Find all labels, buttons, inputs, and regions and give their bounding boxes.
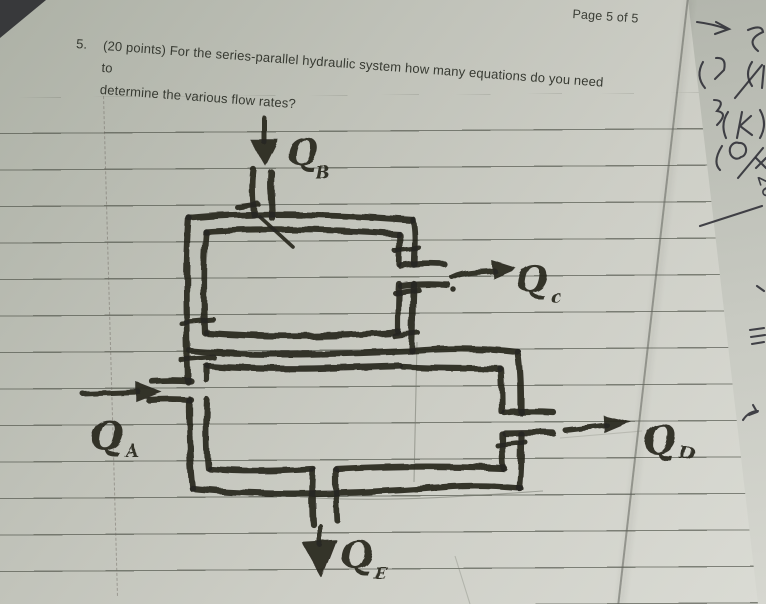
scribble-arrow [697,22,729,34]
flow-arrow-qc-right [452,261,514,292]
flow-arrows [83,118,629,577]
scribble-k-paren [723,110,764,138]
scribble-slash-2 [738,148,763,178]
flow-label-qd: Q D [643,417,695,464]
pipe-bottom-outlet [312,470,337,524]
pipe-couplings [181,204,525,445]
scribble-slash-3 [700,206,762,226]
svg-text:D: D [679,444,695,464]
flow-arrow-qb-down [251,118,277,164]
scribble-check [743,405,758,420]
svg-text:c: c [550,286,561,307]
scribble-5-8 [716,143,766,170]
svg-text:Q: Q [90,413,123,458]
scribble-3 [714,100,723,125]
svg-text:B: B [315,164,330,184]
flow-label-qb: Q B [287,132,330,184]
svg-text:Q: Q [287,132,318,174]
pipe-top-inlet [253,170,272,218]
svg-text:Q: Q [341,535,372,577]
scribble-equals [750,328,765,344]
flow-label-qc: Q c [516,259,561,307]
scribble-tick [757,286,764,291]
pipe-middle-band [190,332,412,369]
flow-label-qe: Q E [341,535,388,584]
flow-arrow-qd-right [565,416,629,432]
pipe-upper-loop-top [189,214,413,234]
flow-label-qa: Q A [90,413,138,461]
pipe-bottom-wall [193,467,520,494]
pipe-qc-branch [401,263,448,286]
photo-of-exam-page: Page 5 of 5 5. (20 points) For the serie… [0,0,766,604]
handwritten-margin-marks: 20 [697,22,766,420]
hydraulic-diagram: Q B Q c Q A Q D Q E [83,118,695,584]
scribble-paren-2 [699,58,724,88]
pipe-qd-branch [505,411,553,433]
svg-text:A: A [123,441,138,461]
scribble-z [748,27,763,51]
scribble-score-20: 20 [752,171,766,201]
svg-text:Q: Q [643,417,676,462]
svg-text:Q: Q [516,259,547,301]
svg-text:E: E [373,564,388,584]
diagram-layer: Q B Q c Q A Q D Q E [0,0,766,604]
pipe-network [149,170,553,524]
flow-arrow-qe-down [303,526,336,577]
